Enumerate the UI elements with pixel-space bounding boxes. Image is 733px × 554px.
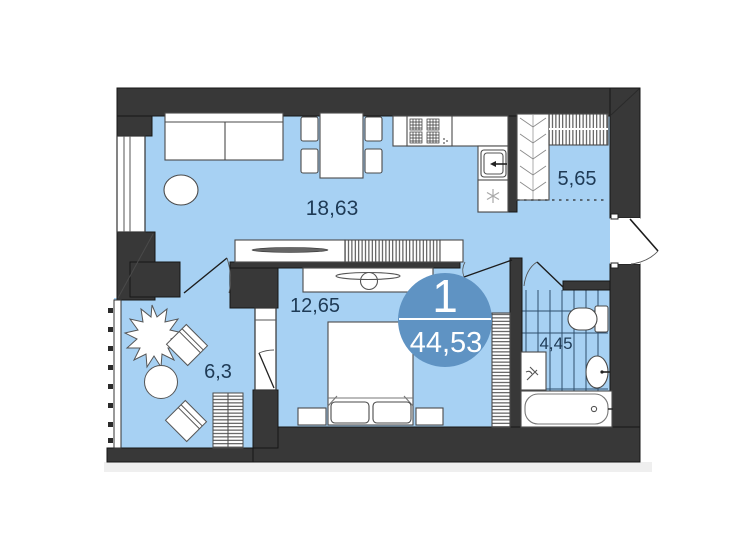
- wall-bathroom-top: [563, 281, 610, 290]
- radiator-icon: [213, 393, 243, 448]
- wardrobe-rail-icon: [517, 114, 549, 200]
- sofa-icon: [165, 113, 283, 160]
- wall-left-upper: [117, 116, 152, 136]
- shelf-hatch-icon: [345, 240, 440, 262]
- dining-table-icon: [320, 113, 363, 178]
- wall-right-upper: [610, 88, 640, 218]
- wall-kitchen-hallway: [508, 116, 517, 212]
- floor-plan-drawing: 18,63 5,65 12,65 6,3 4,45 1 44,53: [0, 0, 733, 554]
- nightstand-left-icon: [298, 408, 326, 425]
- bathtub-icon: [521, 391, 613, 427]
- wall-balcony-top: [130, 262, 180, 297]
- room-label-bedroom: 12,65: [290, 295, 340, 317]
- cabinet-end-icon: [440, 240, 463, 262]
- balcony-glazing: [108, 300, 121, 448]
- wall-balcony-bedroom-lower: [253, 390, 278, 448]
- tv-icon: [252, 248, 328, 253]
- toilet-icon: [568, 306, 608, 332]
- washing-machine-icon: [521, 352, 546, 390]
- unit-total-area: 44,53: [410, 327, 483, 359]
- floor-plan-canvas: 18,63 5,65 12,65 6,3 4,45 1 44,53: [0, 0, 733, 554]
- room-label-hallway: 5,65: [558, 168, 597, 190]
- living-room-window: [117, 136, 145, 232]
- fridge-icon: [478, 180, 508, 212]
- nightstand-right-icon: [416, 408, 443, 425]
- unit-number: 1: [432, 270, 458, 322]
- room-label-living-kitchen: 18,63: [306, 197, 359, 220]
- side-table-icon: [164, 175, 198, 205]
- room-label-balcony: 6,3: [204, 361, 232, 383]
- building-shadow: [104, 462, 652, 472]
- balcony-table-icon: [145, 366, 178, 399]
- wall-partition-living-bedroom: [230, 262, 460, 268]
- wall-bottom-main: [253, 427, 640, 462]
- balcony-door: [255, 308, 276, 390]
- bedroom-wardrobe-icon: [492, 313, 510, 427]
- stove-icon: [407, 116, 452, 146]
- wall-bathroom-left: [510, 258, 522, 427]
- wall-top: [117, 88, 640, 116]
- room-label-bathroom: 4,45: [539, 334, 572, 353]
- wall-bottom-balcony: [107, 448, 253, 462]
- wall-balcony-bedroom-upper: [230, 262, 278, 308]
- tv-stand-icon: [235, 240, 345, 262]
- wardrobe-shelf-icon: [549, 114, 608, 145]
- pillow-icon: [373, 402, 411, 423]
- bed-icon: [328, 322, 413, 425]
- pillow-icon: [331, 402, 369, 423]
- entrance-door: [610, 214, 658, 268]
